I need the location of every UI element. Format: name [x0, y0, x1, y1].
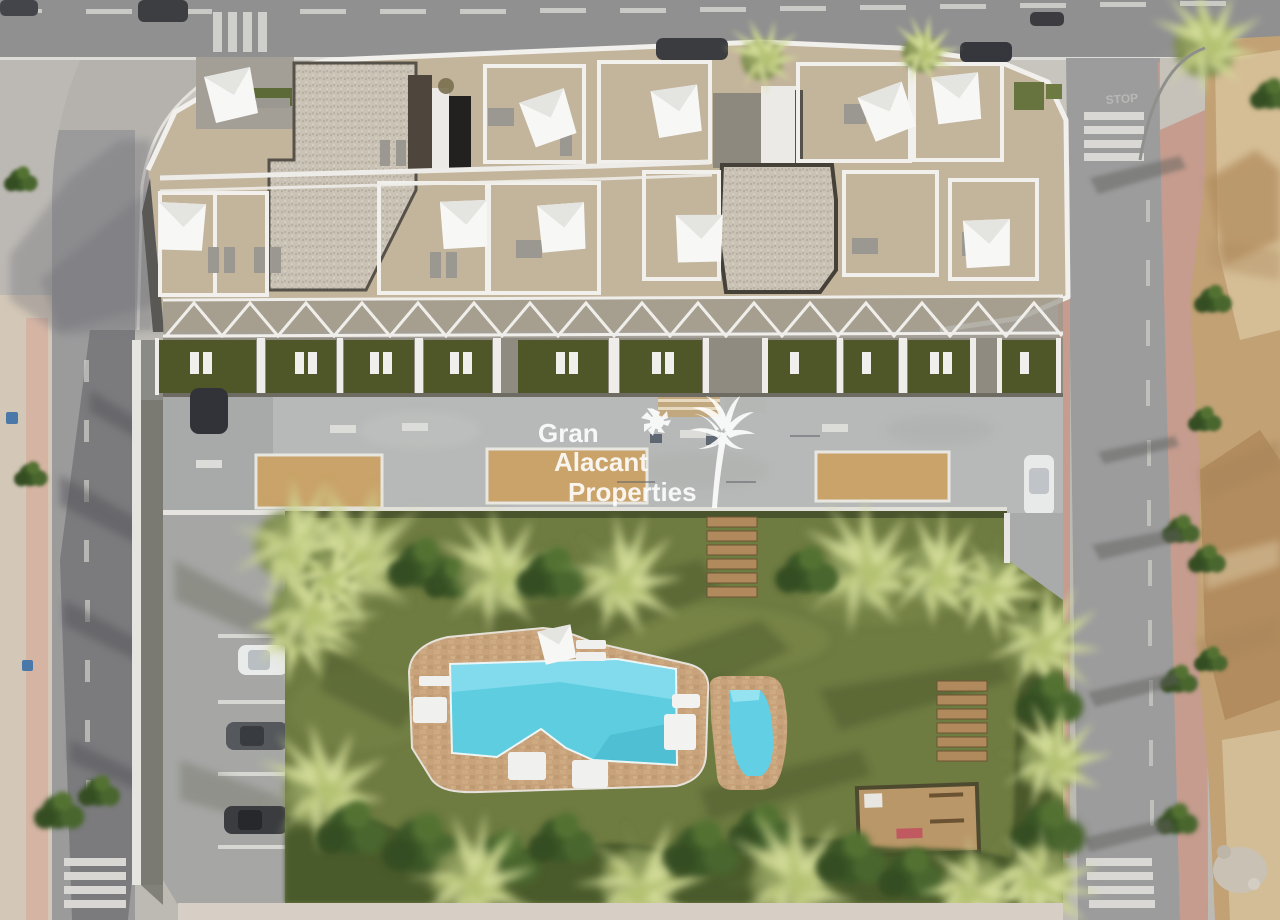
svg-text:Gran: Gran [538, 418, 599, 448]
svg-text:Alacant: Alacant [554, 447, 648, 477]
svg-text:STOP: STOP [1105, 91, 1138, 107]
svg-text:Properties: Properties [568, 477, 697, 507]
